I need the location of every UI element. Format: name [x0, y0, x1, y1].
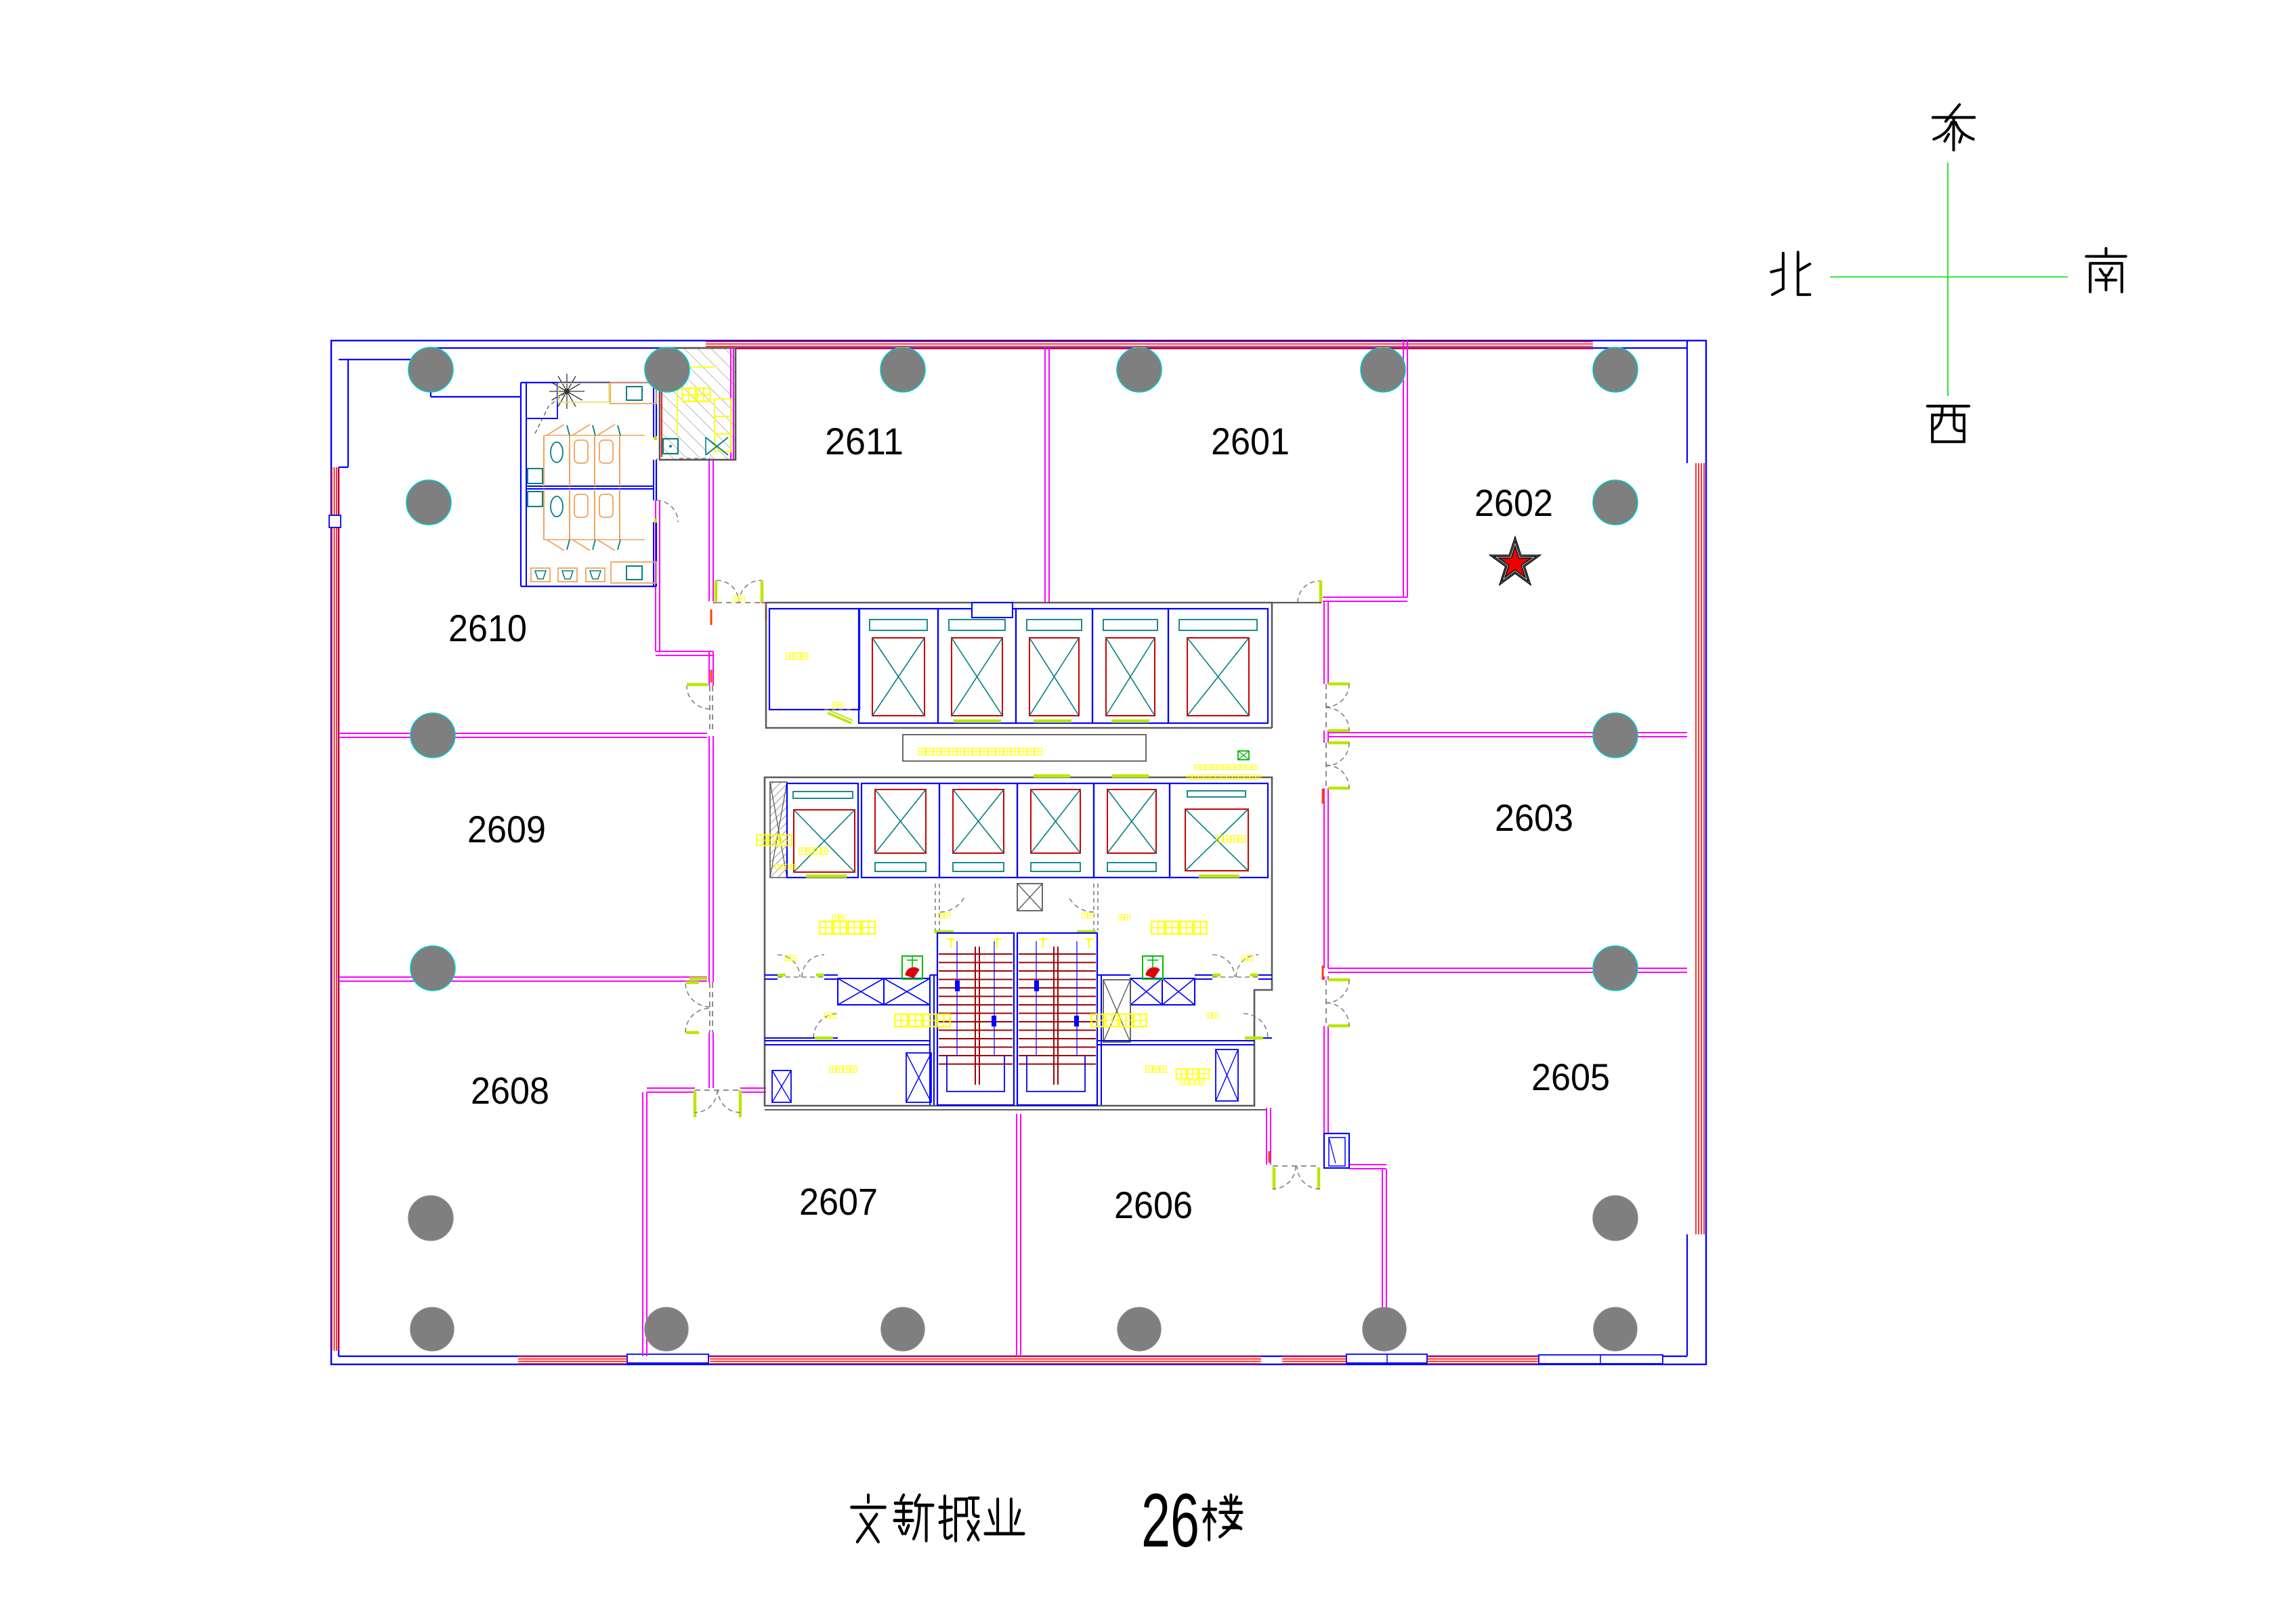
svg-text:2606: 2606 — [1114, 1184, 1193, 1226]
svg-text:26: 26 — [1141, 1478, 1199, 1563]
svg-text:2611: 2611 — [825, 420, 903, 462]
svg-text:2608: 2608 — [471, 1069, 549, 1112]
svg-text:2610: 2610 — [448, 607, 527, 649]
svg-text:2605: 2605 — [1531, 1056, 1610, 1098]
svg-text:2609: 2609 — [467, 808, 546, 850]
svg-text:2603: 2603 — [1495, 796, 1573, 839]
svg-text:2607: 2607 — [799, 1180, 878, 1223]
svg-text:2601: 2601 — [1211, 420, 1290, 462]
svg-text:2602: 2602 — [1474, 481, 1553, 524]
